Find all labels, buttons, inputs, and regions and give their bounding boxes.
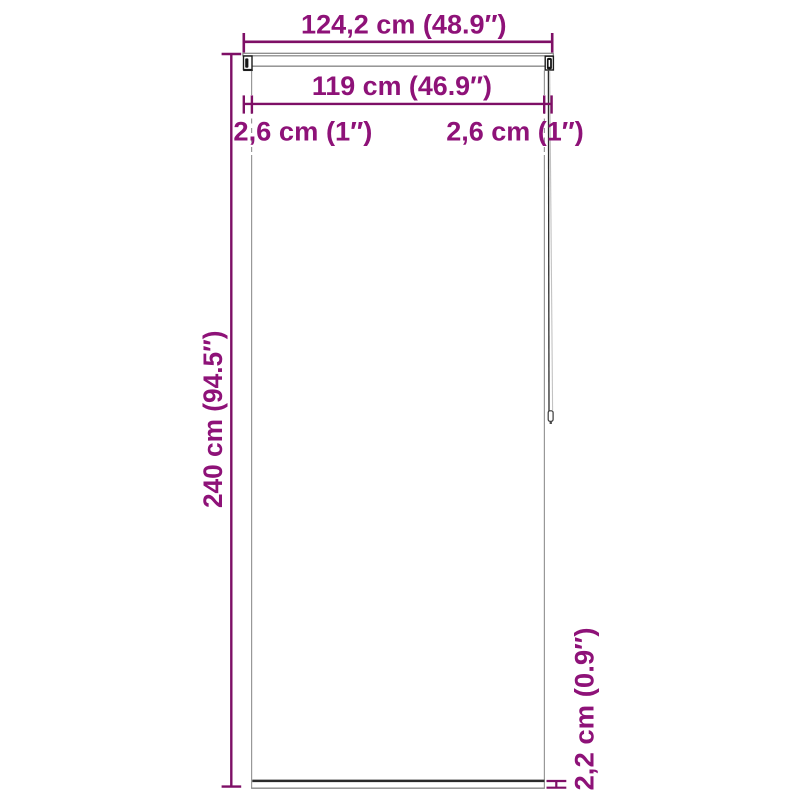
svg-text:2,2 cm (0.9″): 2,2 cm (0.9″) xyxy=(570,628,600,791)
svg-text:2,6 cm (1″): 2,6 cm (1″) xyxy=(233,117,372,147)
svg-text:2,6 cm (1″): 2,6 cm (1″) xyxy=(446,117,584,147)
svg-text:240 cm (94.5″): 240 cm (94.5″) xyxy=(198,331,228,509)
svg-text:124,2 cm (48.9″): 124,2 cm (48.9″) xyxy=(301,10,507,40)
svg-text:119 cm (46.9″): 119 cm (46.9″) xyxy=(312,71,492,101)
